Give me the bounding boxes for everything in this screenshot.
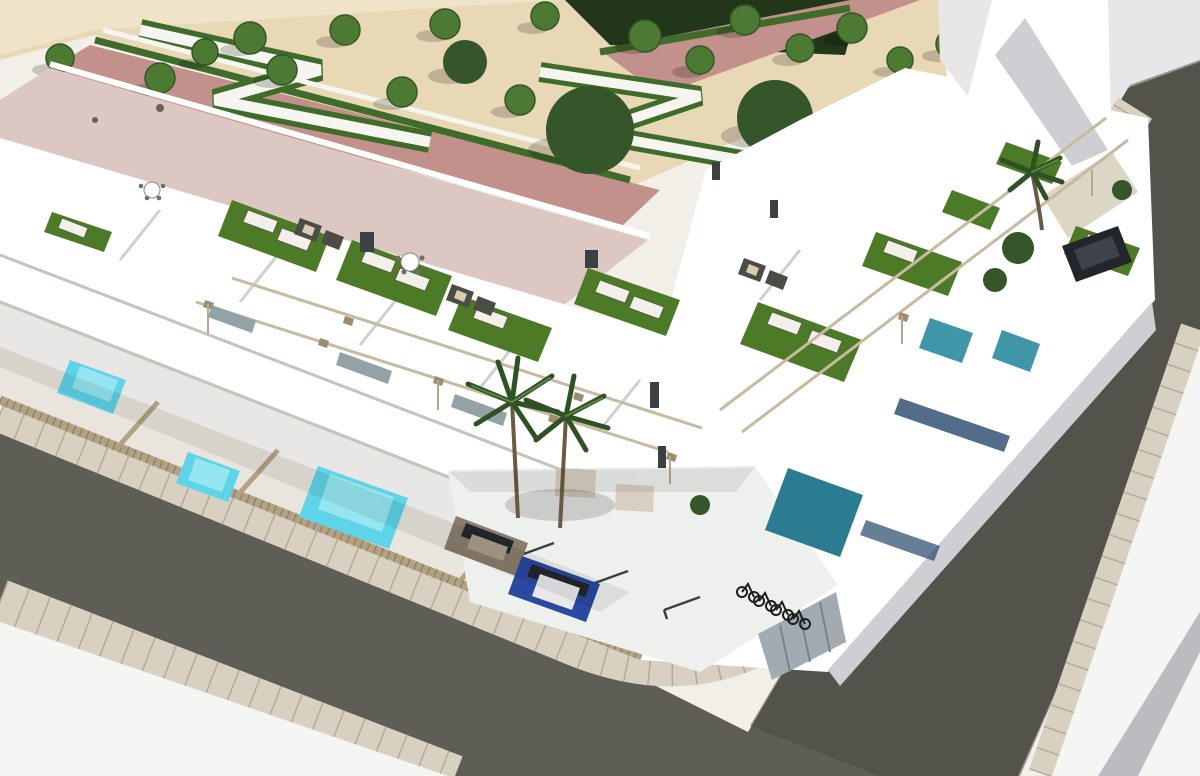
- roof-vent-2: [92, 117, 98, 123]
- render-canvas: [0, 0, 1200, 776]
- aerial-render: [0, 0, 1200, 776]
- roof-vent-1: [156, 104, 164, 112]
